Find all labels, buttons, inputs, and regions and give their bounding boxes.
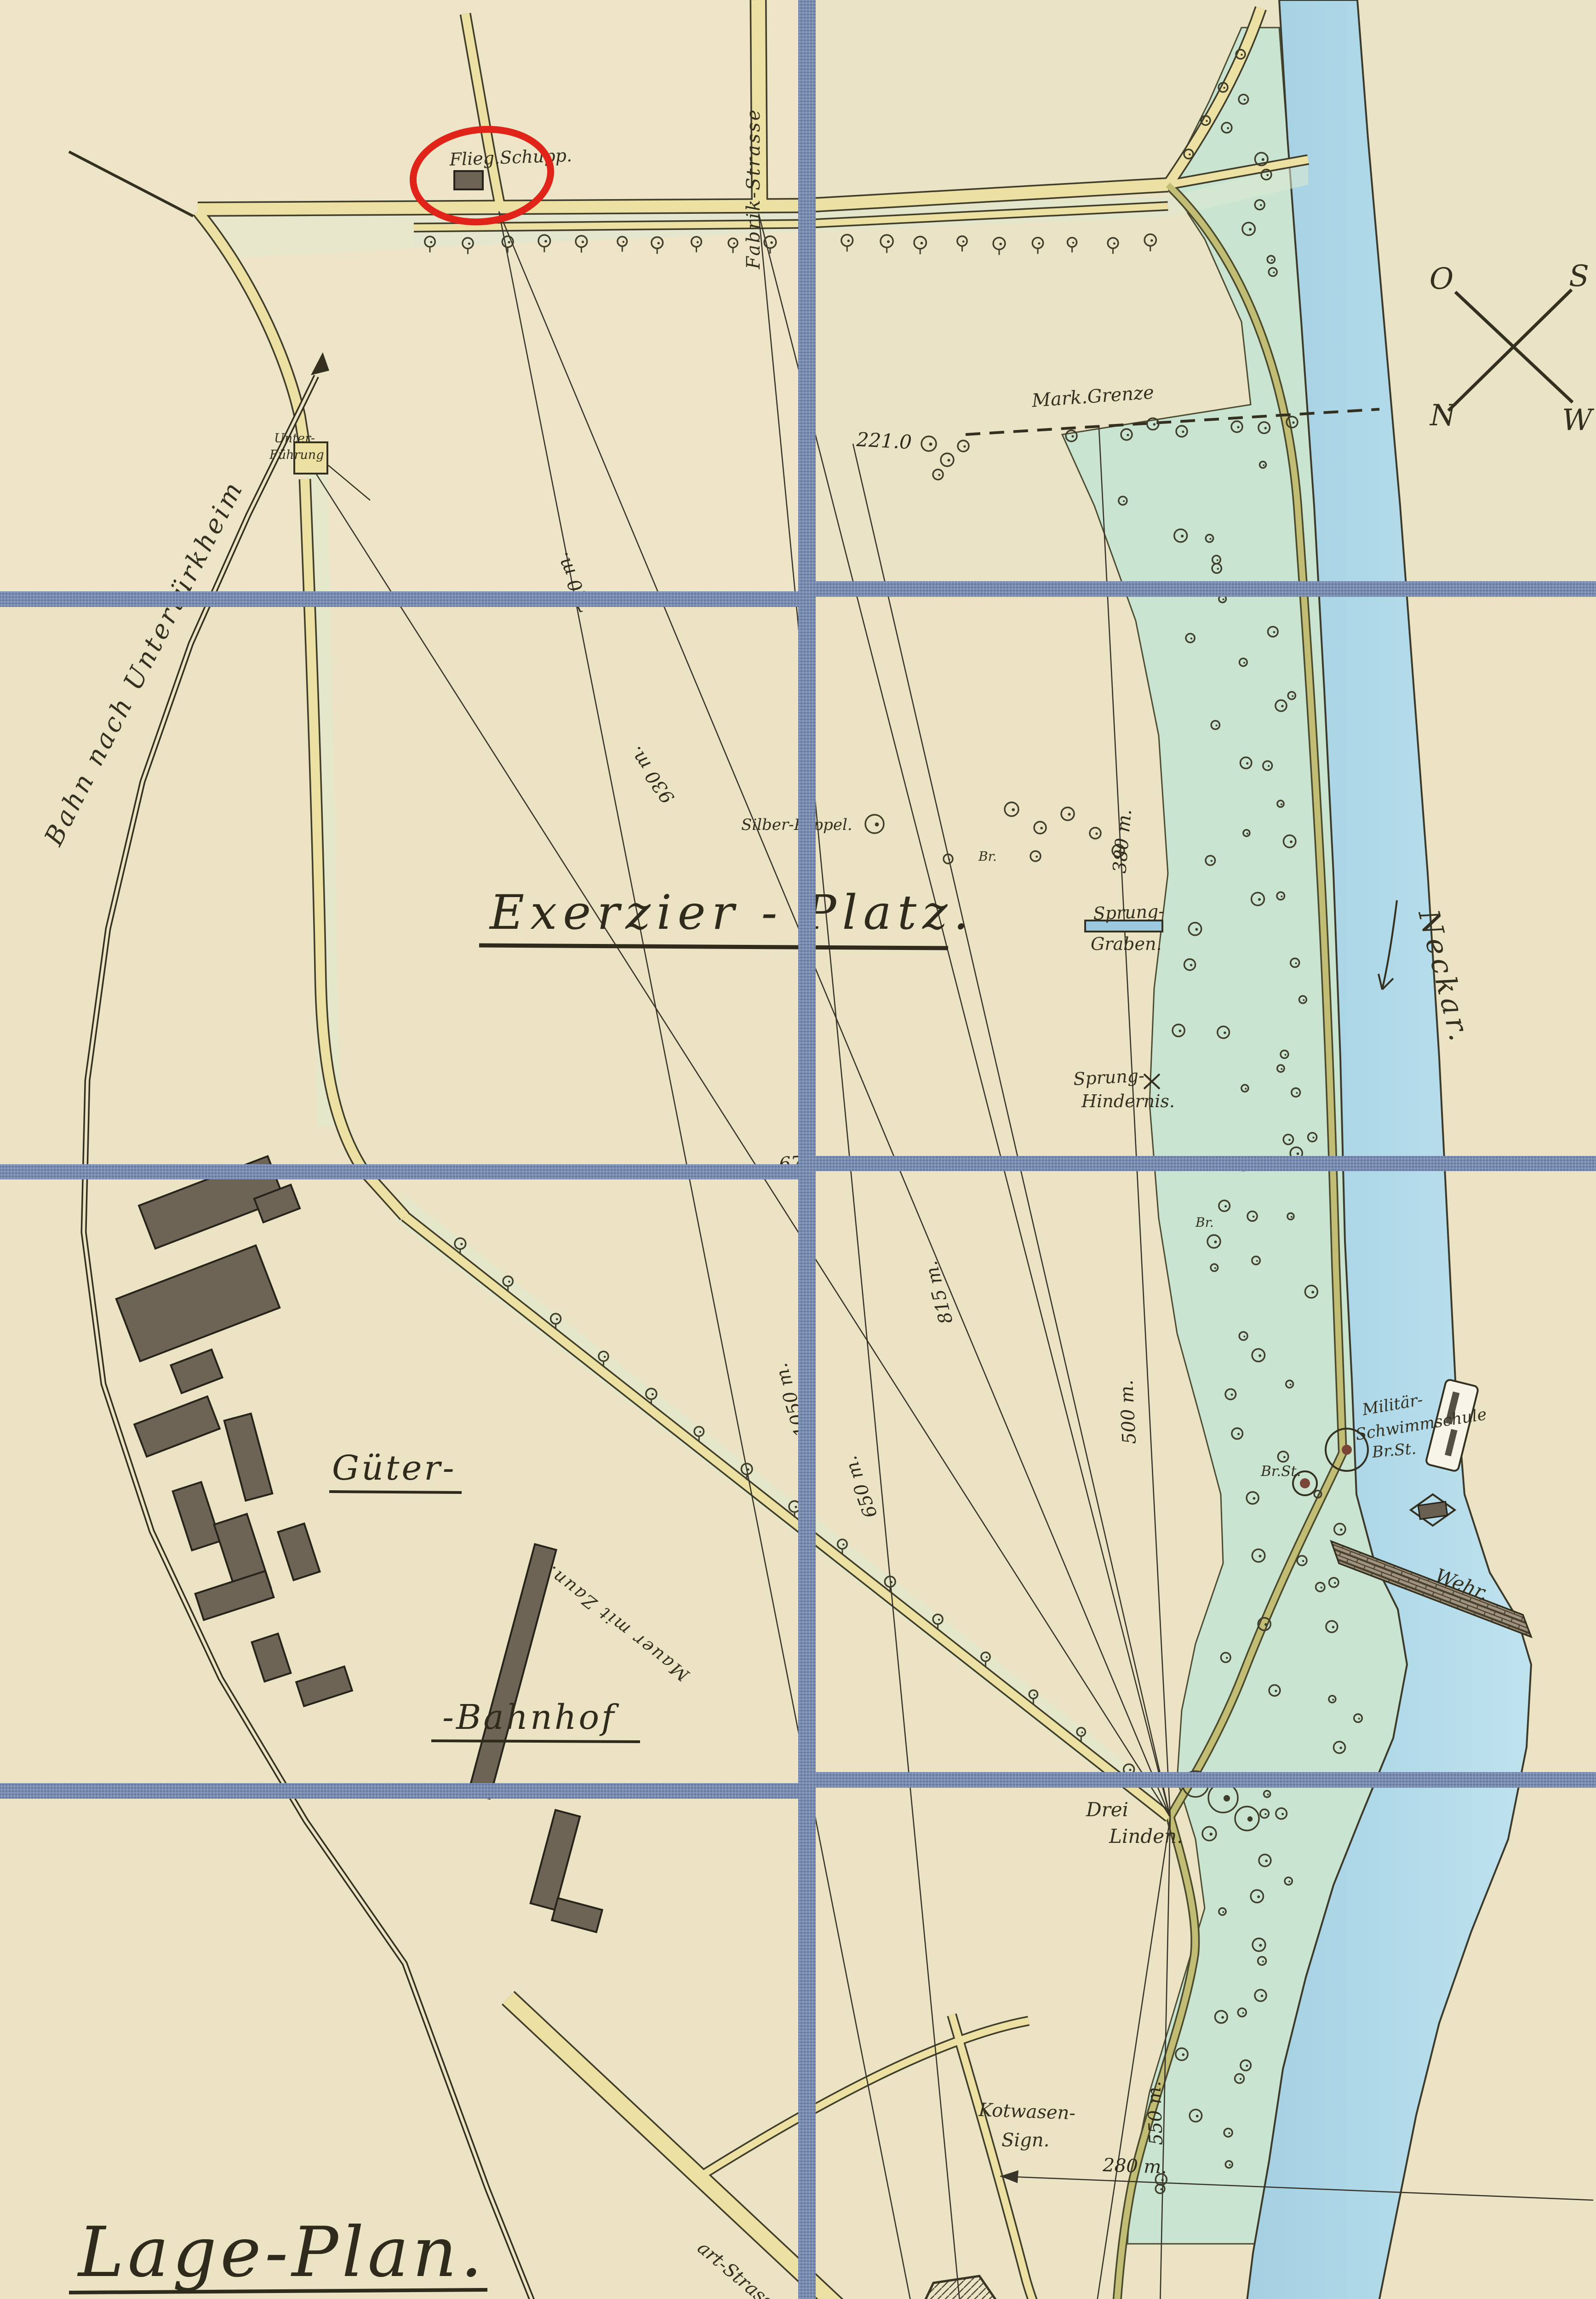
compass-south: S (1569, 259, 1589, 293)
label-br-a: Br. (978, 849, 997, 864)
label-brst-1: Br.St. (1371, 1440, 1417, 1462)
label-sprung-graben-1: Sprung- (1093, 901, 1165, 924)
label-unterfuehrung-2: Führung (269, 448, 324, 462)
h-fold-3-left (0, 1783, 798, 1799)
h-fold-2-right (816, 1156, 1596, 1171)
label-flieger-schuppen: Flieg.Schupp. (449, 145, 572, 170)
label-sprung-hindernis-2: Hindernis. (1081, 1091, 1175, 1111)
label-bahnhof: -Bahnhof (442, 1698, 619, 1737)
vertical-fold (798, 0, 816, 2299)
h-fold-1-left (0, 591, 798, 607)
gueter-underline (329, 1492, 462, 1493)
compass-east: O (1430, 262, 1453, 296)
bahnhof-underline (431, 1741, 640, 1742)
label-kotwasen-2: Sign. (1001, 2130, 1049, 2151)
h-fold-3-right (816, 1772, 1596, 1788)
brunnen-dot (1342, 1445, 1352, 1455)
building (454, 171, 483, 189)
label-linden: Linden. (1109, 1825, 1183, 1847)
enclosure-building (1418, 1502, 1447, 1519)
title-block: Lage-Plan. Exerzier-Platz. b. Cañstatt. … (69, 2213, 499, 2299)
label-drei: Drei (1086, 1798, 1128, 1821)
map-title: Lage-Plan. (77, 2213, 486, 2293)
compass-west: W (1562, 403, 1595, 437)
map-canvas: Flieg.Schupp. Fabrik-Strasse Bahn nach U… (0, 0, 1596, 2299)
distance-label: 280 m. (1102, 2155, 1167, 2178)
historic-map-lage-plan: Flieg.Schupp. Fabrik-Strasse Bahn nach U… (0, 0, 1596, 2299)
label-elevation-2210: 221.0 (855, 428, 912, 453)
label-sprung-graben-2: Graben. (1091, 934, 1162, 954)
paper-panel-tint (0, 0, 798, 591)
brunnen-dot-2 (1300, 1478, 1310, 1488)
h-fold-1-right (816, 581, 1596, 597)
label-gueter: Güter- (332, 1448, 457, 1488)
label-exerzier-platz: Exerzier - Platz. (489, 885, 974, 940)
exerzier-underline (479, 945, 948, 948)
compass-north: N (1429, 399, 1457, 433)
label-silber-pappel: Silber-Pappel. (741, 816, 852, 834)
label-brst-2: Br.St. (1260, 1463, 1301, 1480)
label-sprung-hindernis-1: Sprung- (1073, 1065, 1145, 1089)
distance-label: 550 m. (1144, 2081, 1167, 2145)
distance-label: 500 m. (1116, 1379, 1140, 1445)
h-fold-2-left (0, 1164, 798, 1179)
label-br-b: Br. (1195, 1215, 1214, 1230)
label-fabrik-strasse: Fabrik-Strasse (743, 108, 764, 270)
label-unterfuehrung-1: Unter- (274, 431, 315, 446)
label-kotwasen-1: Kotwasen- (978, 2099, 1076, 2124)
